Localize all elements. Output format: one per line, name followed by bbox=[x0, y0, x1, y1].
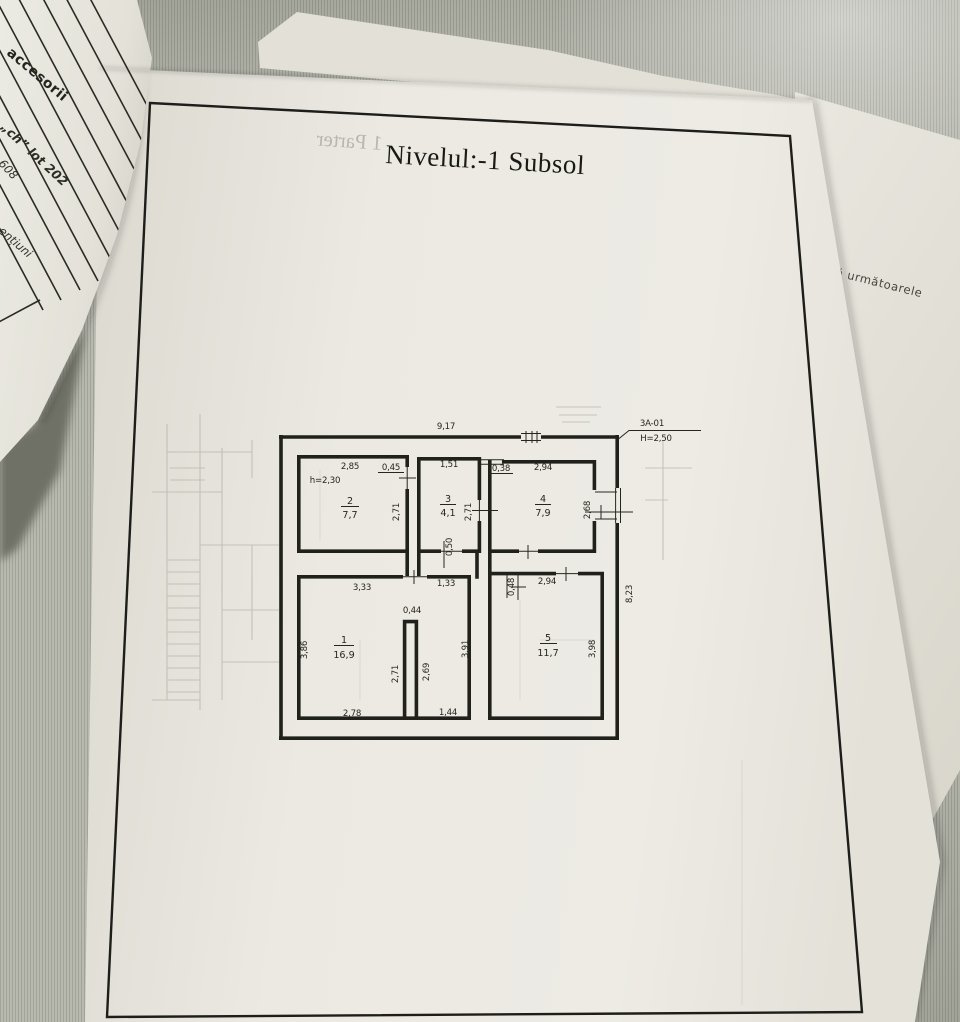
dim-r2-width: 2,85 bbox=[341, 462, 359, 472]
dim-corridor-wall: 0,50 bbox=[445, 538, 455, 556]
dim-r4-width: 2,94 bbox=[534, 463, 552, 473]
dim-r5-width: 2,94 bbox=[538, 577, 556, 587]
room-5-area: 11,7 bbox=[537, 648, 558, 659]
dim-r3-depth: 2,71 bbox=[464, 503, 474, 521]
dim-r3-width: 1,51 bbox=[440, 460, 458, 470]
room-1-number: 1 bbox=[341, 635, 347, 646]
main-page: 1 Parter Nivelul:-1 Subsol bbox=[85, 68, 940, 1022]
dim-r1-bottom-right: 1,44 bbox=[439, 708, 457, 718]
bleed-text: 1 Parter bbox=[316, 126, 383, 155]
dim-r1-top-right: 1,33 bbox=[437, 579, 455, 589]
room-3-area: 4,1 bbox=[440, 508, 455, 519]
dim-r1-left: 3,86 bbox=[300, 641, 310, 659]
room-1-area: 16,9 bbox=[333, 650, 354, 661]
desk-photo: istă următoarele 1 Parter Nivelul:-1 Sub… bbox=[0, 0, 960, 1022]
ref-code: 3A-01 bbox=[640, 419, 664, 429]
dim-r2-depth: 2,71 bbox=[392, 503, 402, 521]
room-2-area: 7,7 bbox=[342, 510, 357, 521]
dim-door-3-4: 0,38 bbox=[492, 464, 510, 474]
dim-r1-bottom-left: 2,78 bbox=[343, 709, 361, 719]
dim-door-2-3: 0,45 bbox=[382, 463, 400, 473]
room-5-number: 5 bbox=[545, 633, 551, 644]
dim-alcove-right: 2,69 bbox=[422, 663, 432, 681]
room-4-area: 7,9 bbox=[535, 508, 550, 519]
dim-alcove-width: 0,44 bbox=[403, 606, 421, 616]
dim-r5-door: 0,48 bbox=[507, 578, 517, 596]
dim-r1-right: 3,91 bbox=[461, 640, 471, 658]
room-3-number: 3 bbox=[445, 494, 451, 505]
room-4-number: 4 bbox=[540, 494, 546, 505]
dim-r4-depth: 2,68 bbox=[583, 501, 593, 519]
room-2-number: 2 bbox=[347, 496, 353, 507]
dim-top-width: 9,17 bbox=[437, 422, 455, 432]
dim-right-height: 8,23 bbox=[625, 585, 635, 603]
dim-r5-right: 3,98 bbox=[588, 640, 598, 658]
dim-alcove-left: 2,71 bbox=[391, 665, 401, 683]
room-height-note: h=2,30 bbox=[310, 476, 341, 486]
photo-scene: istă următoarele 1 Parter Nivelul:-1 Sub… bbox=[0, 0, 960, 1022]
ref-height-note: H=2,50 bbox=[640, 434, 672, 444]
dim-r1-top-left: 3,33 bbox=[353, 583, 371, 593]
